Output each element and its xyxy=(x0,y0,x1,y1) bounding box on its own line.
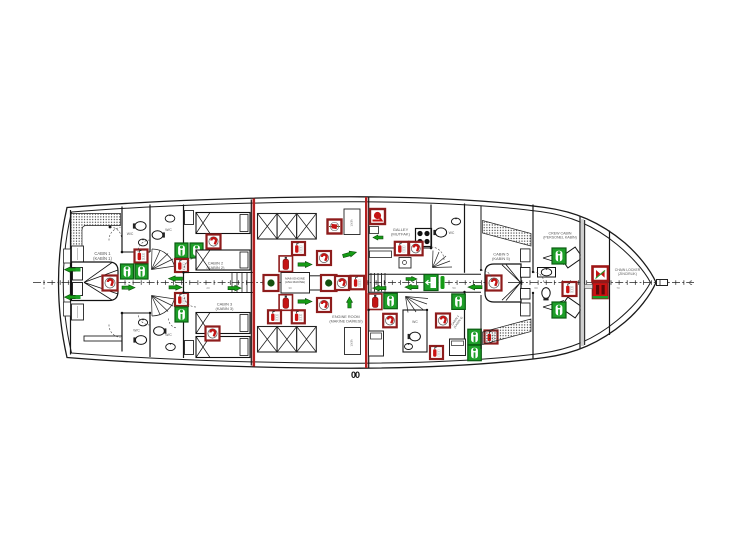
svg-text:WC: WC xyxy=(412,320,418,324)
svg-text:W/C: W/C xyxy=(165,228,172,232)
svg-text:20: 20 xyxy=(206,286,210,290)
svg-text:MAIN ENGINE(ANA MAKİNE): MAIN ENGINE(ANA MAKİNE) xyxy=(285,277,305,285)
svg-text:GALLEY(MUTFAK): GALLEY(MUTFAK) xyxy=(391,227,411,237)
svg-text:CABIN 2(KABİN 2): CABIN 2(KABİN 2) xyxy=(206,261,225,271)
svg-text:W/C: W/C xyxy=(165,333,172,337)
svg-text:VENT.: VENT. xyxy=(350,339,354,347)
svg-text:50: 50 xyxy=(452,286,456,290)
svg-text:ENGINE ROOM(MAKİNE DAİRESİ): ENGINE ROOM(MAKİNE DAİRESİ) xyxy=(329,315,363,323)
svg-text:30: 30 xyxy=(288,286,292,290)
svg-text:W/C: W/C xyxy=(133,329,140,333)
svg-text:00: 00 xyxy=(351,370,360,380)
svg-text:40: 40 xyxy=(370,286,374,290)
svg-text:CABIN 3(KABİN 3): CABIN 3(KABİN 3) xyxy=(215,302,234,312)
svg-text:CABIN 1(KABİN 1): CABIN 1(KABİN 1) xyxy=(93,251,112,261)
svg-text:70: 70 xyxy=(616,286,620,290)
svg-text:60: 60 xyxy=(534,286,538,290)
svg-text:10: 10 xyxy=(124,286,128,290)
svg-text:VENT.: VENT. xyxy=(350,219,354,227)
svg-text:CABIN 5(KABİN 5): CABIN 5(KABİN 5) xyxy=(492,252,511,262)
svg-text:WC: WC xyxy=(449,231,455,235)
svg-text:W/C: W/C xyxy=(127,232,134,236)
